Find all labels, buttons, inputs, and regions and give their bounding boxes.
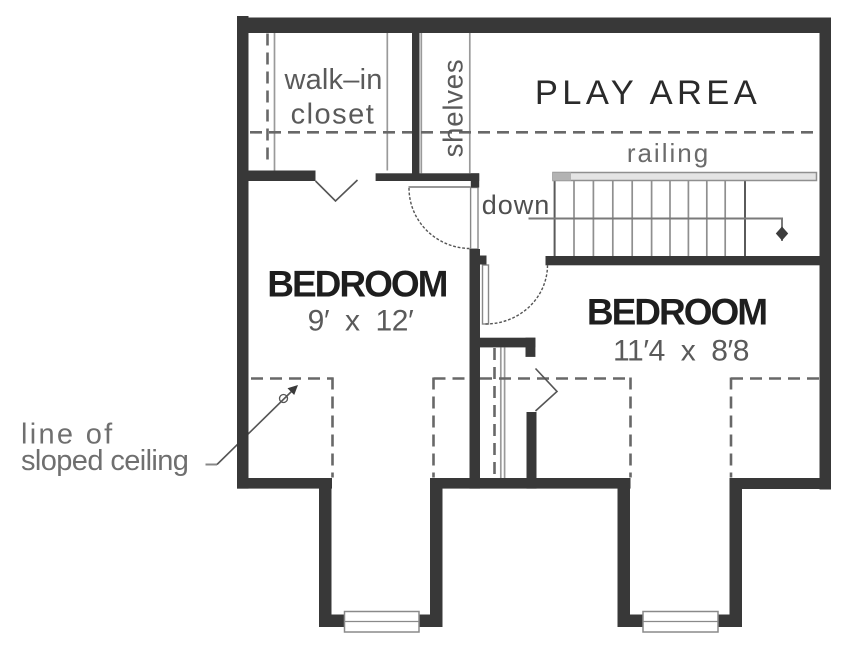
svg-text:shelves: shelves bbox=[438, 59, 469, 158]
svg-text:BEDROOM: BEDROOM bbox=[587, 292, 766, 333]
svg-text:11′4 x 8′8: 11′4 x 8′8 bbox=[613, 335, 749, 368]
svg-text:9′ x 12′: 9′ x 12′ bbox=[308, 305, 414, 338]
svg-text:closet: closet bbox=[291, 99, 376, 131]
svg-text:sloped ceiling: sloped ceiling bbox=[21, 445, 188, 477]
svg-text:down: down bbox=[482, 190, 551, 220]
svg-text:railing: railing bbox=[627, 138, 710, 168]
svg-text:walk–in: walk–in bbox=[283, 64, 382, 96]
svg-text:BEDROOM: BEDROOM bbox=[267, 264, 446, 305]
svg-text:PLAY AREA: PLAY AREA bbox=[535, 74, 761, 112]
